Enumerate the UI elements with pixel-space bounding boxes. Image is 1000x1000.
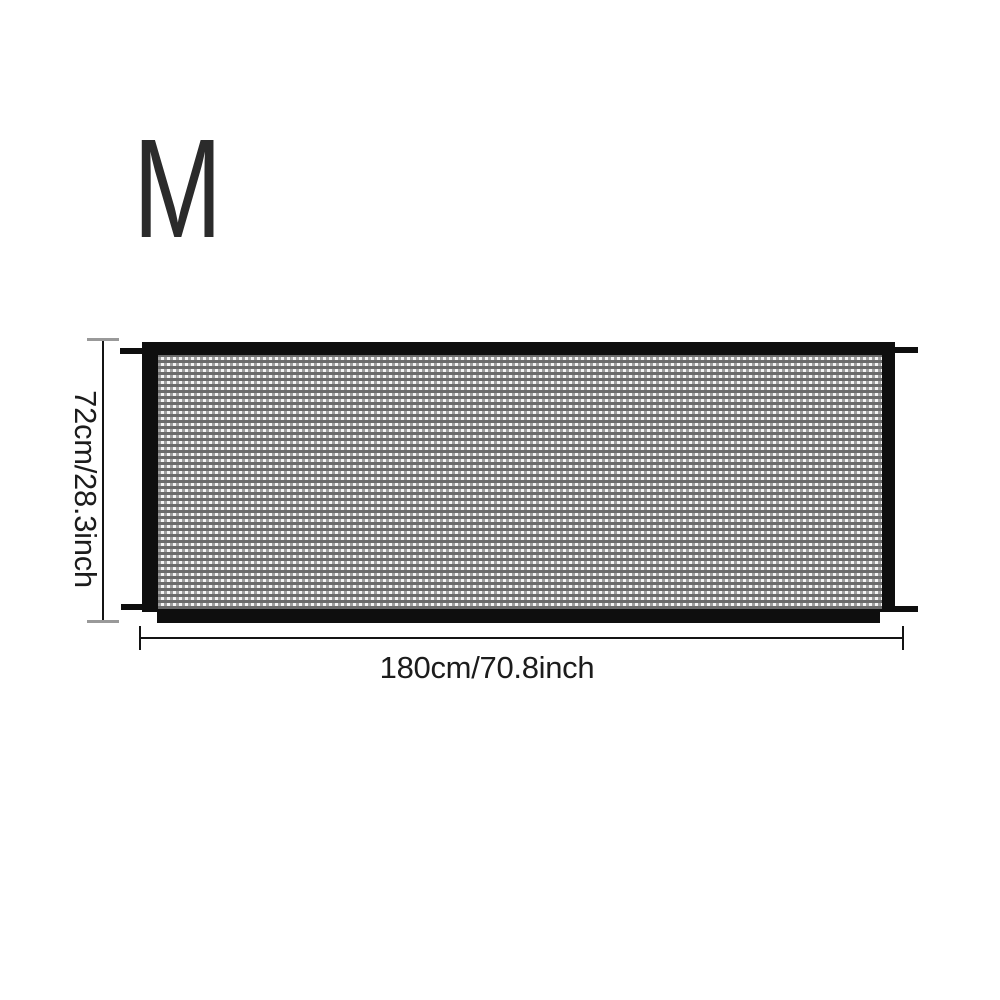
gate-mesh-panel — [158, 355, 882, 609]
width-dimension-line — [139, 637, 904, 639]
gate-bottom-rail — [157, 612, 880, 623]
mounting-tab-bottom-left — [121, 604, 146, 610]
mounting-tab-top-right — [894, 347, 918, 353]
width-dimension-label: 180cm/70.8inch — [337, 650, 637, 686]
mounting-tab-top-left — [120, 348, 146, 354]
width-dimension-tick-left — [139, 626, 141, 650]
height-dimension-label: 72cm/28.3inch — [69, 339, 101, 639]
product-diagram-canvas: M 72cm/28.3inch 180cm/70.8inch — [0, 0, 1000, 1000]
mounting-tab-bottom-right — [894, 606, 918, 612]
size-label: M — [133, 118, 222, 259]
width-dimension-tick-right — [902, 626, 904, 650]
gate-frame — [142, 342, 895, 612]
